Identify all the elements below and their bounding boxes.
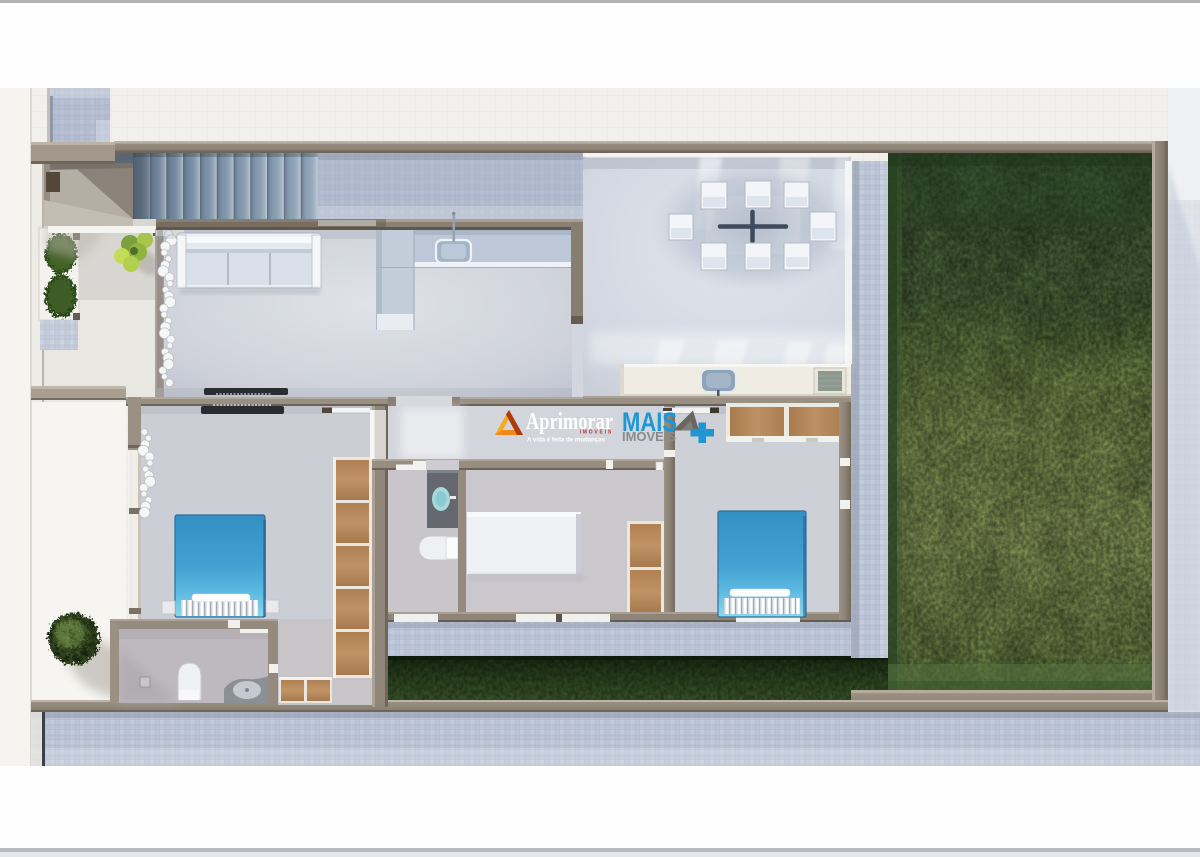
svg-text:IMÓVEIS: IMÓVEIS bbox=[580, 428, 613, 436]
svg-text:A vida é feita de mudanças: A vida é feita de mudanças bbox=[527, 437, 605, 444]
svg-text:IMÓVEIS: IMÓVEIS bbox=[622, 429, 676, 444]
